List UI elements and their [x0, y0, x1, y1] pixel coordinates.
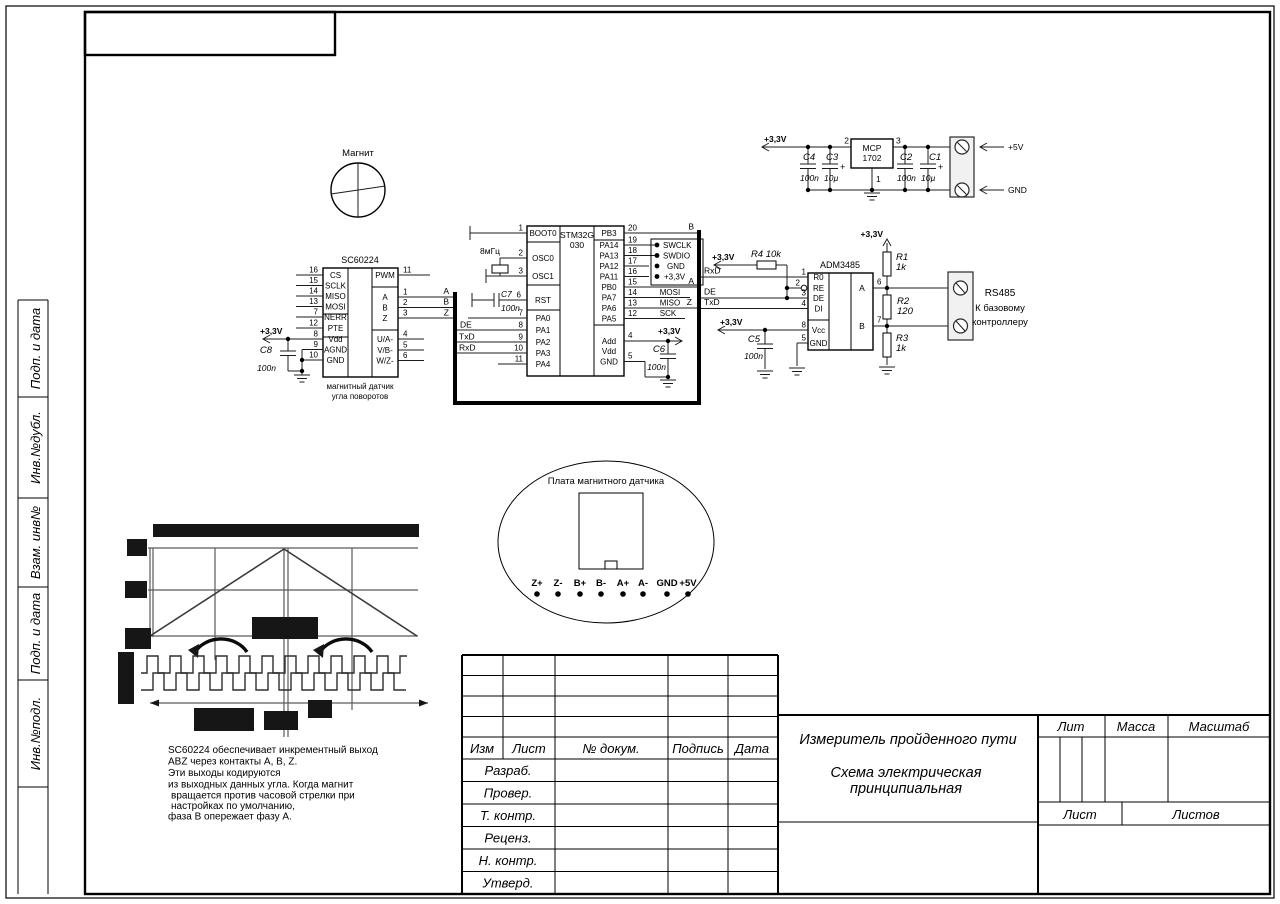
pin-label: PA12 — [600, 262, 620, 271]
chip-title: STM32G — [560, 230, 594, 240]
power-flag-3v3: +3,3V — [861, 229, 884, 239]
resistor-r3 — [883, 333, 891, 357]
chip-sc60224: SC60224 магнитный датчик угла поворотов … — [257, 255, 453, 401]
pin-label: GND — [327, 356, 345, 365]
pin-label: CS — [330, 271, 341, 280]
pin-number: 8 — [314, 330, 319, 339]
pin-label: W/Z- — [376, 357, 394, 366]
net-label-b: B — [443, 297, 449, 307]
cap-value: 100n — [647, 362, 666, 372]
board-pin: Z+ — [531, 578, 543, 589]
mass-header: Масса — [1117, 719, 1155, 734]
swd-pin-label: SWDIO — [663, 252, 690, 261]
chip-stm32g030: STM32G 030 8мГц C7 100n 1 2 3 6 7 8 9 10… — [457, 222, 703, 388]
pin-label: PTE — [328, 324, 344, 333]
side-label: Подп. и дата — [28, 308, 43, 389]
res-value: 1k — [896, 262, 907, 273]
ground-symbol — [879, 367, 895, 374]
note-line: Эти выходы кодируются — [168, 768, 281, 779]
pin-label: BOOT0 — [529, 229, 557, 238]
magnet-label: Магнит — [342, 148, 374, 159]
waveform-figure — [118, 524, 428, 737]
pin-label: AGND — [324, 346, 347, 355]
role-prover: Провер. — [484, 786, 532, 801]
cap-value: 100n — [257, 363, 276, 373]
pin-number: 11 — [515, 355, 524, 364]
pin-number: 1 — [802, 268, 807, 277]
doc-subtitle-2: принципиальная — [850, 781, 962, 797]
cap-value: 100n — [800, 173, 819, 183]
cap-ref-c3: C3 — [826, 152, 839, 163]
top-left-stamp — [85, 12, 335, 55]
sheet-header: Лист — [1062, 807, 1097, 822]
pin-number: 3 — [896, 136, 901, 146]
res-value: 120 — [897, 306, 914, 317]
pin-label: Vdd — [602, 347, 616, 356]
board-pin: Z- — [554, 578, 563, 589]
role-utverd: Утверд. — [482, 876, 534, 891]
pin-label: V/B- — [377, 346, 393, 355]
pin-label: PB0 — [601, 283, 617, 292]
pin-label: PA5 — [602, 315, 617, 324]
pin-number: 12 — [628, 309, 637, 318]
swd-pin-label: SWCLK — [663, 241, 692, 250]
sensor-board-view: Плата магнитного датчика Z+ Z- B+ B- A+ … — [498, 461, 714, 623]
pin-number: 6 — [877, 278, 882, 287]
pin-number: 3 — [519, 267, 524, 276]
chip-title: 030 — [570, 240, 584, 250]
pin-label: PA4 — [536, 360, 551, 369]
pin-number: 14 — [309, 287, 318, 296]
net-label-a: A — [688, 276, 694, 286]
pin-label: Z — [383, 314, 388, 323]
role-tkontr: Т. контр. — [480, 808, 536, 823]
cap-ref-c8: C8 — [260, 345, 273, 356]
cap-ref-c2: C2 — [900, 152, 913, 163]
pin-label: R0 — [813, 273, 824, 282]
net-label-a: A — [443, 286, 449, 296]
resistor-r2 — [883, 295, 891, 319]
chip-title: SC60224 — [341, 255, 379, 265]
pin-label: PA3 — [536, 349, 551, 358]
net-label-z: Z — [444, 308, 449, 318]
pin-number: 15 — [309, 276, 318, 285]
power-flag-gnd: GND — [1008, 185, 1027, 195]
doc-subtitle-1: Схема электрическая — [831, 765, 982, 781]
net-label-mosi: MOSI — [660, 288, 680, 297]
swd-pin-label: +3,3V — [664, 273, 686, 282]
net-label-txd: TxD — [459, 332, 475, 342]
pin-label: B — [382, 304, 387, 313]
note-line: из выходных данных угла. Когда магнит — [168, 780, 354, 791]
power-flag-3v3: +3,3V — [764, 134, 787, 144]
note-line: SC60224 обеспечивает инкрементный выход — [168, 744, 378, 756]
scale-header: Масштаб — [1189, 719, 1250, 734]
pin-label: NERR — [324, 313, 347, 322]
doc-title: Измеритель пройденного пути — [799, 732, 1016, 748]
col-header-list: Лист — [511, 741, 546, 756]
pin-label: GND — [810, 339, 828, 348]
side-label: Взам. инв№ — [28, 506, 43, 579]
pin-label: MISO — [325, 292, 345, 301]
side-label: Инв.№подл. — [28, 697, 43, 770]
pin-label: SCLK — [325, 282, 347, 291]
lit-header: Лит — [1057, 719, 1085, 734]
pin-number: 7 — [519, 309, 524, 318]
schematic-sheet: Подп. и дата Инв.№дубл. Взам. инв№ Подп.… — [0, 0, 1280, 904]
net-label-de: DE — [704, 287, 716, 297]
role-recenz: Реценз. — [484, 831, 531, 846]
note-line: ABZ через контакты A, B, Z. — [168, 757, 297, 768]
resistor-r1 — [883, 252, 891, 276]
ground-symbol — [789, 368, 805, 375]
pin-number: 12 — [309, 319, 318, 328]
pin-number: 7 — [314, 308, 319, 317]
pin-number: 2 — [403, 298, 408, 307]
pin-label: Vdd — [328, 335, 342, 344]
pin-number: 18 — [628, 246, 637, 255]
schematic-canvas: Подп. и дата Инв.№дубл. Взам. инв№ Подп.… — [0, 0, 1280, 904]
role-razrab: Разраб. — [484, 763, 531, 778]
chip-caption: угла поворотов — [332, 392, 388, 401]
pin-number: 19 — [628, 236, 637, 245]
polarity-plus: + — [938, 162, 943, 172]
board-pin-labels: Z+ Z- B+ B- A+ A- GND +5V — [531, 578, 697, 597]
sheets-header: Листов — [1171, 807, 1220, 822]
pin-number: 9 — [314, 340, 319, 349]
pin-number: 6 — [517, 291, 522, 300]
crystal-symbol — [492, 265, 508, 273]
regulator-mcp1702: MCP 1702 +3,3V 2 3 1 C4 100n C3 + 10µ C2… — [762, 134, 1027, 200]
pin-label: RST — [535, 296, 551, 305]
col-header-doc: № докум. — [582, 741, 639, 756]
pin-number: 8 — [519, 321, 524, 330]
chip-title: MCP — [863, 143, 882, 153]
power-flag-5v: +5V — [1008, 142, 1024, 152]
col-header-izm: Изм — [470, 741, 494, 756]
cap-value: 10µ — [824, 173, 838, 183]
net-label-sck: SCK — [660, 309, 677, 318]
board-pin: GND — [656, 578, 677, 589]
ground-symbol — [864, 193, 880, 200]
pin-number: 8 — [802, 321, 807, 330]
title-block: Изм Лист № докум. Подпись Дата Разраб. П… — [462, 655, 1270, 894]
pin-label: OSC1 — [532, 272, 554, 281]
pin-number: 5 — [628, 352, 633, 361]
pin-label: PA1 — [536, 326, 551, 335]
note-line: настройках по умолчанию, — [171, 801, 295, 812]
rs485-label: RS485 — [985, 288, 1016, 299]
chip-title: 1702 — [863, 153, 882, 163]
net-label-de: DE — [460, 320, 472, 330]
net-label-b: B — [688, 222, 694, 232]
pin-number: 1 — [519, 224, 524, 233]
ground-symbol — [757, 371, 773, 378]
pin-number: 11 — [403, 266, 412, 275]
net-label-txd: TxD — [704, 297, 720, 307]
board-pin: A+ — [617, 578, 630, 589]
note-text: SC60224 обеспечивает инкрементный выход … — [168, 744, 378, 823]
polarity-plus: + — [840, 162, 845, 172]
crystal-freq: 8мГц — [480, 246, 500, 256]
pin-number: 10 — [309, 351, 318, 360]
pin-number: 13 — [309, 297, 318, 306]
pin-label: U/A- — [377, 335, 393, 344]
pin-number: 10 — [514, 344, 523, 353]
pin-label: OSC0 — [532, 254, 554, 263]
cap-ref-c5: C5 — [748, 334, 761, 345]
pin-number: 15 — [628, 278, 637, 287]
ground-symbol — [660, 380, 676, 387]
pin-label: RE — [813, 284, 824, 293]
pin-number: 5 — [403, 341, 408, 350]
board-label: Плата магнитного датчика — [548, 476, 665, 487]
pin-label: PA13 — [600, 252, 620, 261]
rs485-dest-label: К базовому — [975, 303, 1025, 314]
board-outline — [579, 493, 643, 569]
side-label: Инв.№дубл. — [28, 411, 43, 484]
pin-number: 20 — [628, 224, 637, 233]
pin-number: 17 — [628, 257, 637, 266]
res-ref-r4: R4 10k — [751, 249, 782, 260]
pin-label: GND — [600, 358, 618, 367]
board-pin: +5V — [679, 578, 697, 589]
pin-label: PA11 — [600, 273, 619, 282]
pin-label: PA6 — [602, 304, 617, 313]
pin-label: DI — [815, 305, 823, 314]
chip-caption: магнитный датчик — [326, 382, 394, 391]
pin-number: 3 — [403, 309, 408, 318]
magnet-symbol: Магнит — [331, 148, 385, 217]
pin-number: 1 — [876, 174, 881, 184]
cap-ref-c7: C7 — [501, 289, 512, 299]
pin-label: PB3 — [601, 229, 617, 238]
pin-number: 3 — [802, 289, 807, 298]
pin-label: PA2 — [536, 338, 551, 347]
pin-number: 2 — [844, 136, 849, 146]
pin-number: 2 — [519, 249, 524, 258]
pin-label: DE — [813, 294, 824, 303]
board-pin: A- — [638, 578, 648, 589]
rs485-dest-label: контроллеру — [972, 317, 1028, 328]
power-flag-3v3: +3,3V — [260, 326, 283, 336]
power-flag-3v3: +3,3V — [658, 326, 681, 336]
pin-number: 2 — [796, 279, 801, 288]
pin-number: 7 — [877, 316, 882, 325]
pin-number: 9 — [519, 333, 524, 342]
cap-value: 100n — [897, 173, 916, 183]
res-value: 1k — [896, 343, 907, 354]
board-pin: B+ — [574, 578, 587, 589]
chip-title: ADM3485 — [820, 260, 860, 270]
swd-pin-label: GND — [667, 262, 685, 271]
resistor-r4 — [757, 261, 776, 269]
net-label-miso: MISO — [660, 299, 680, 308]
pin-label: MOSI — [325, 303, 345, 312]
pin-label: A — [859, 283, 865, 293]
side-label: Подп. и дата — [28, 593, 43, 674]
note-line: фаза B опережает фазу A. — [168, 811, 292, 823]
pin-label: PA7 — [602, 294, 617, 303]
note-line: вращается против часовой стрелки при — [171, 791, 355, 802]
ground-symbol — [294, 375, 310, 382]
pin-number: 1 — [403, 288, 408, 297]
board-notch — [605, 561, 617, 569]
pin-number: 4 — [403, 330, 408, 339]
power-flag-3v3: +3,3V — [720, 317, 743, 327]
role-nkontr: Н. контр. — [479, 853, 538, 868]
pin-number: 16 — [309, 266, 318, 275]
pin-label: PWM — [375, 271, 395, 280]
pin-number: 6 — [403, 351, 408, 360]
pin-label: Add — [602, 337, 616, 346]
cap-value: 100n — [744, 351, 763, 361]
col-header-date: Дата — [733, 741, 769, 756]
pin-label: Vcc — [812, 326, 825, 335]
pin-number: 16 — [628, 267, 637, 276]
net-label-rxd: RxD — [459, 343, 476, 353]
board-pin: B- — [596, 578, 606, 589]
power-flag-3v3: +3,3V — [712, 252, 735, 262]
pin-number: 4 — [628, 331, 633, 340]
pin-label: B — [859, 321, 865, 331]
pin-label: A — [382, 293, 388, 302]
net-label-z: Z — [687, 297, 692, 307]
cap-value: 10µ — [921, 173, 935, 183]
pin-label: PA0 — [536, 314, 551, 323]
pin-label: PA14 — [600, 241, 620, 250]
pin-number: 14 — [628, 288, 637, 297]
cap-ref-c6: C6 — [653, 344, 666, 355]
pin-number: 13 — [628, 299, 637, 308]
chip-adm3485: ADM3485 RxD DE TxD R4 10k +3,3V +3,3V C5… — [701, 229, 1028, 378]
pin-number: 5 — [802, 334, 807, 343]
cap-value: 100n — [501, 303, 520, 313]
col-header-sign: Подпись — [672, 741, 724, 756]
pin-number: 4 — [802, 299, 807, 308]
cap-ref-c4: C4 — [803, 152, 815, 163]
